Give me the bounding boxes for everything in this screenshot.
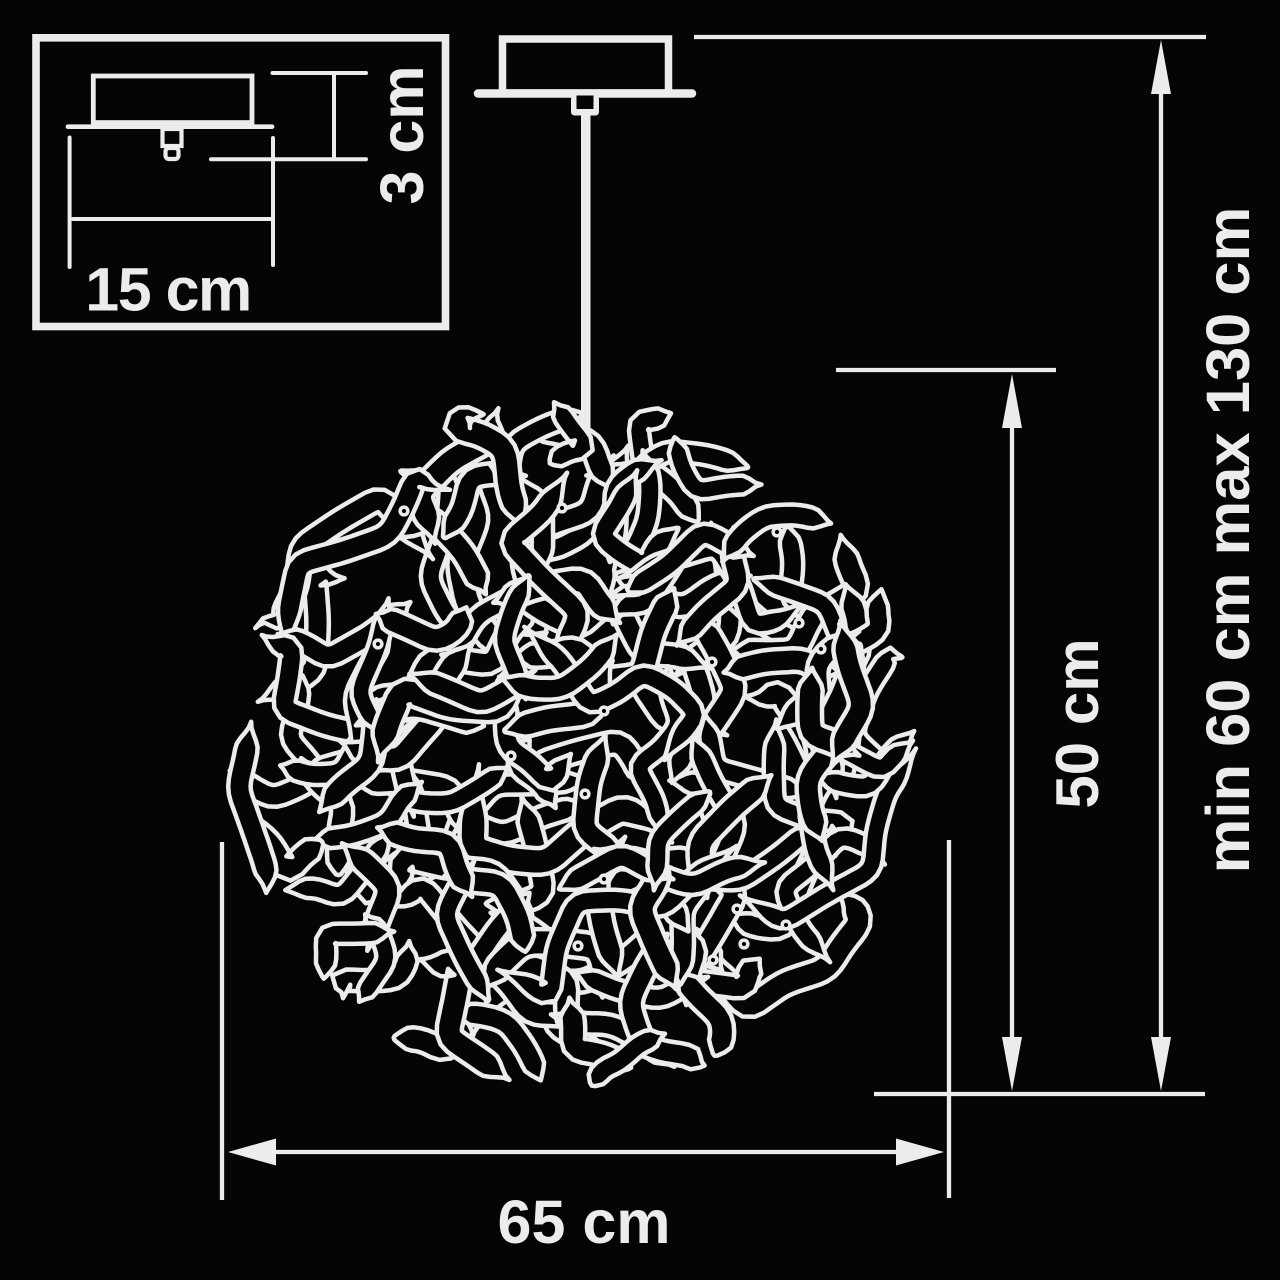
svg-text:50 cm: 50 cm [1044, 638, 1111, 808]
svg-text:15 cm: 15 cm [85, 256, 250, 324]
svg-text:min 60 cm max 130 cm: min 60 cm max 130 cm [1194, 207, 1263, 874]
svg-text:3 cm: 3 cm [368, 65, 436, 204]
svg-text:65 cm: 65 cm [498, 1188, 671, 1256]
